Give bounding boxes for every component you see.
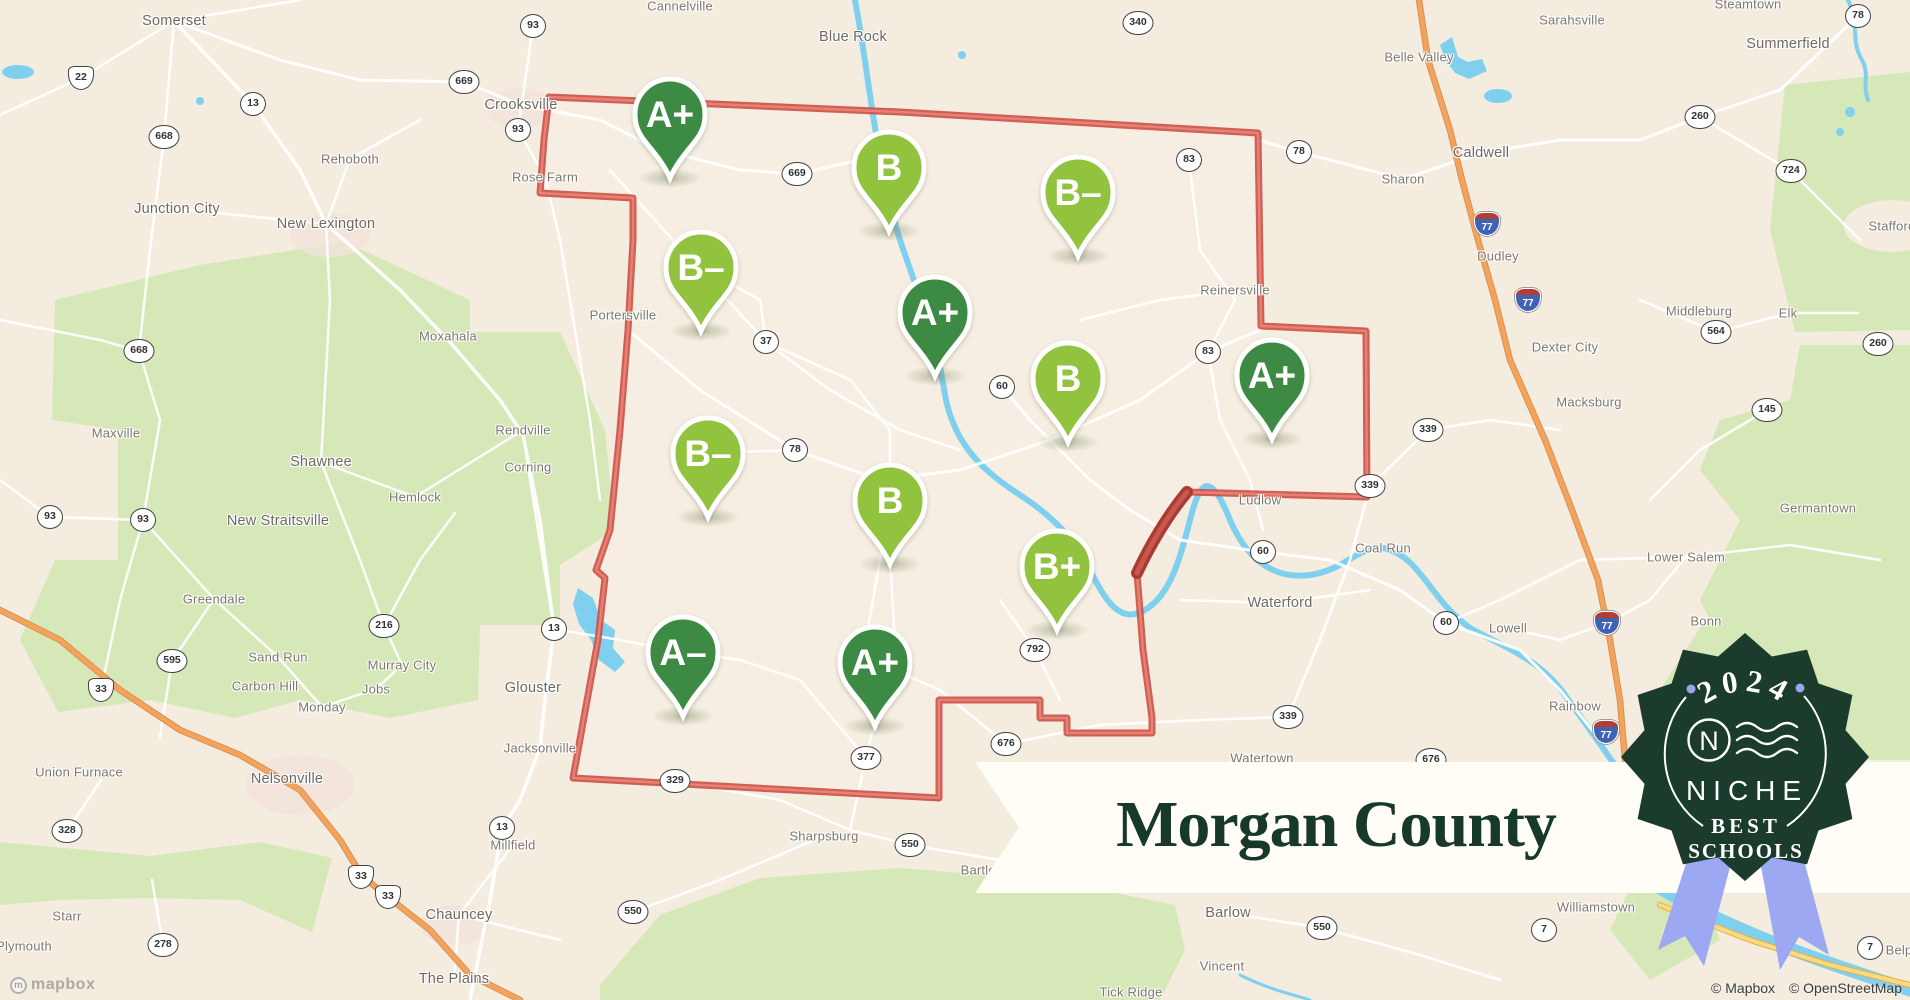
award-badge: 2024 N NICHE BEST SCHOOLS [0,0,1910,1000]
osm-attribution-link[interactable]: © OpenStreetMap [1789,980,1902,996]
badge-award-line2: SCHOOLS [1688,839,1804,863]
attribution: © Mapbox © OpenStreetMap [1701,980,1902,996]
badge-dot-right [1796,684,1805,693]
map-screenshot: SomersetCannelvilleBlue RockBelle Valley… [0,0,1910,1000]
mapbox-attribution-link[interactable]: © Mapbox [1711,980,1775,996]
ribbon-left [1658,845,1734,966]
mapbox-logo[interactable]: m mapbox [10,976,95,994]
niche-logo-n: N [1699,726,1719,756]
mapbox-logo-text: mapbox [31,976,95,994]
badge-dot-left [1687,685,1696,694]
badge-brand-text: NICHE [1686,775,1808,806]
ribbon-right [1758,845,1829,970]
mapbox-logo-icon: m [10,977,27,994]
badge-award-line1: BEST [1711,814,1781,838]
